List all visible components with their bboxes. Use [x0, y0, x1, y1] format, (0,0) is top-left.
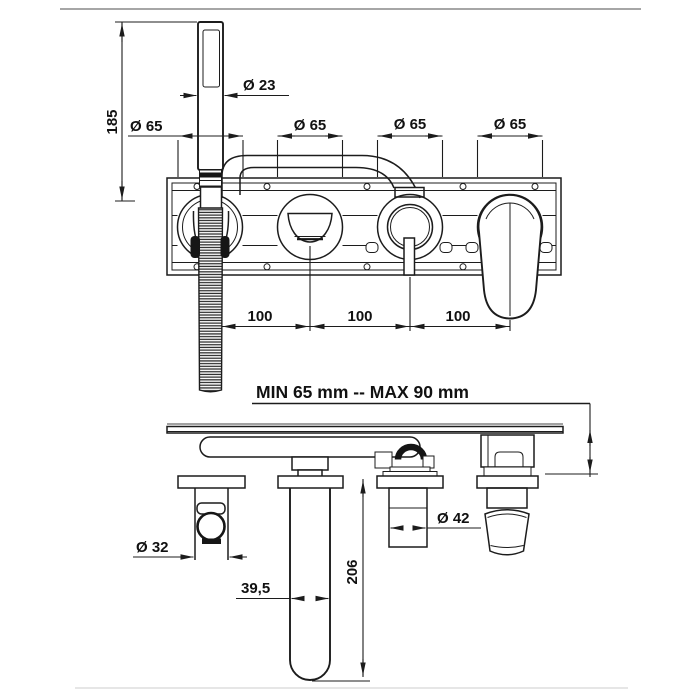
dim-206-label: 206: [344, 559, 361, 584]
knob-side-tab: [440, 243, 452, 253]
dim-65-4: Ø 65: [478, 116, 543, 177]
mounting-hole: [532, 184, 538, 190]
lever-side-tab: [466, 243, 478, 253]
handle-grip-arc: [488, 514, 527, 518]
hose-cross-section: [198, 513, 225, 540]
lever-handle: [466, 195, 552, 319]
knob-paddle: [404, 238, 415, 275]
mounting-hole: [460, 264, 466, 270]
dim-65-label-3: Ø 65: [394, 116, 427, 133]
dim-65-label-4: Ø 65: [494, 116, 527, 133]
front-view: [167, 22, 561, 319]
dim-100-row: 100 100 100: [210, 246, 510, 331]
technical-drawing-page: 185 Ø 23 Ø 65 Ø 65: [0, 0, 700, 700]
spout-flange: [278, 476, 343, 488]
hose-clamp-right: [221, 236, 230, 258]
pipe-outer-curve: [222, 156, 420, 199]
dim-depth: [545, 404, 598, 478]
dim-185-label: 185: [104, 109, 121, 134]
hose-clip-base: [202, 539, 221, 545]
page-rules: [60, 9, 641, 688]
bottom-view: [167, 424, 563, 680]
handshower-hose: [191, 208, 230, 392]
dim-65-1: Ø 65: [128, 118, 243, 177]
faucet-dimension-drawing: 185 Ø 23 Ø 65 Ø 65: [0, 0, 700, 700]
dim-185: 185: [104, 22, 197, 201]
handle-grip-line: [491, 546, 524, 548]
elbow-block-right: [423, 456, 434, 468]
mounting-hole: [264, 264, 270, 270]
dim-206: 206: [312, 479, 370, 681]
hose-body: [199, 208, 223, 392]
mounting-hole: [264, 184, 270, 190]
depth-note-label: MIN 65 mm -- MAX 90 mm: [256, 382, 469, 402]
handshower: [198, 22, 223, 210]
dim-65-3: Ø 65: [378, 116, 443, 177]
spout-connection-block: [292, 457, 328, 470]
cartridge-bottom: [389, 488, 427, 547]
dim-39-5: 39,5: [236, 580, 329, 599]
dim-42-label: Ø 42: [437, 510, 470, 527]
dim-39-5-label: 39,5: [241, 580, 270, 597]
cartridge-cylinder: [389, 488, 427, 547]
handle-base-step: [484, 467, 531, 477]
holder-bottom: [195, 488, 228, 560]
knob-base-step-1: [390, 467, 430, 472]
knob-side-tab: [366, 243, 378, 253]
dim-100-label-1: 100: [247, 308, 272, 325]
lever-side-tab: [540, 243, 552, 253]
dim-23: Ø 23: [180, 77, 289, 96]
depth-note: MIN 65 mm -- MAX 90 mm: [252, 382, 590, 404]
handle-neck: [487, 488, 527, 508]
dim-32: Ø 32: [133, 539, 247, 557]
hose-clamp-left: [191, 236, 201, 258]
front-dimensions: 185 Ø 23 Ø 65 Ø 65: [104, 22, 543, 331]
connector-nut-band: [200, 173, 222, 178]
dim-65-label-2: Ø 65: [294, 117, 327, 134]
wall-body-pipe: [222, 156, 424, 199]
mounting-hole: [364, 184, 370, 190]
holder-flange: [178, 476, 245, 488]
handle-connection-block: [481, 435, 534, 467]
dim-23-label: Ø 23: [243, 77, 276, 94]
handshower-handle-end: [201, 187, 222, 210]
dim-42: Ø 42: [391, 510, 482, 528]
handle-bottom: [485, 488, 529, 555]
mounting-hole: [364, 264, 370, 270]
mounting-hole: [460, 184, 466, 190]
spout-mouth: [288, 214, 332, 243]
dim-65-label-1: Ø 65: [130, 118, 163, 135]
dim-32-label: Ø 32: [136, 539, 169, 556]
plate-edge-band: [167, 427, 563, 434]
spout-tube: [290, 488, 330, 680]
dim-100-label-3: 100: [445, 308, 470, 325]
elbow-block-left: [375, 452, 392, 468]
knob-flange: [377, 476, 443, 488]
dim-100-label-2: 100: [347, 308, 372, 325]
handle-flange: [477, 476, 538, 488]
